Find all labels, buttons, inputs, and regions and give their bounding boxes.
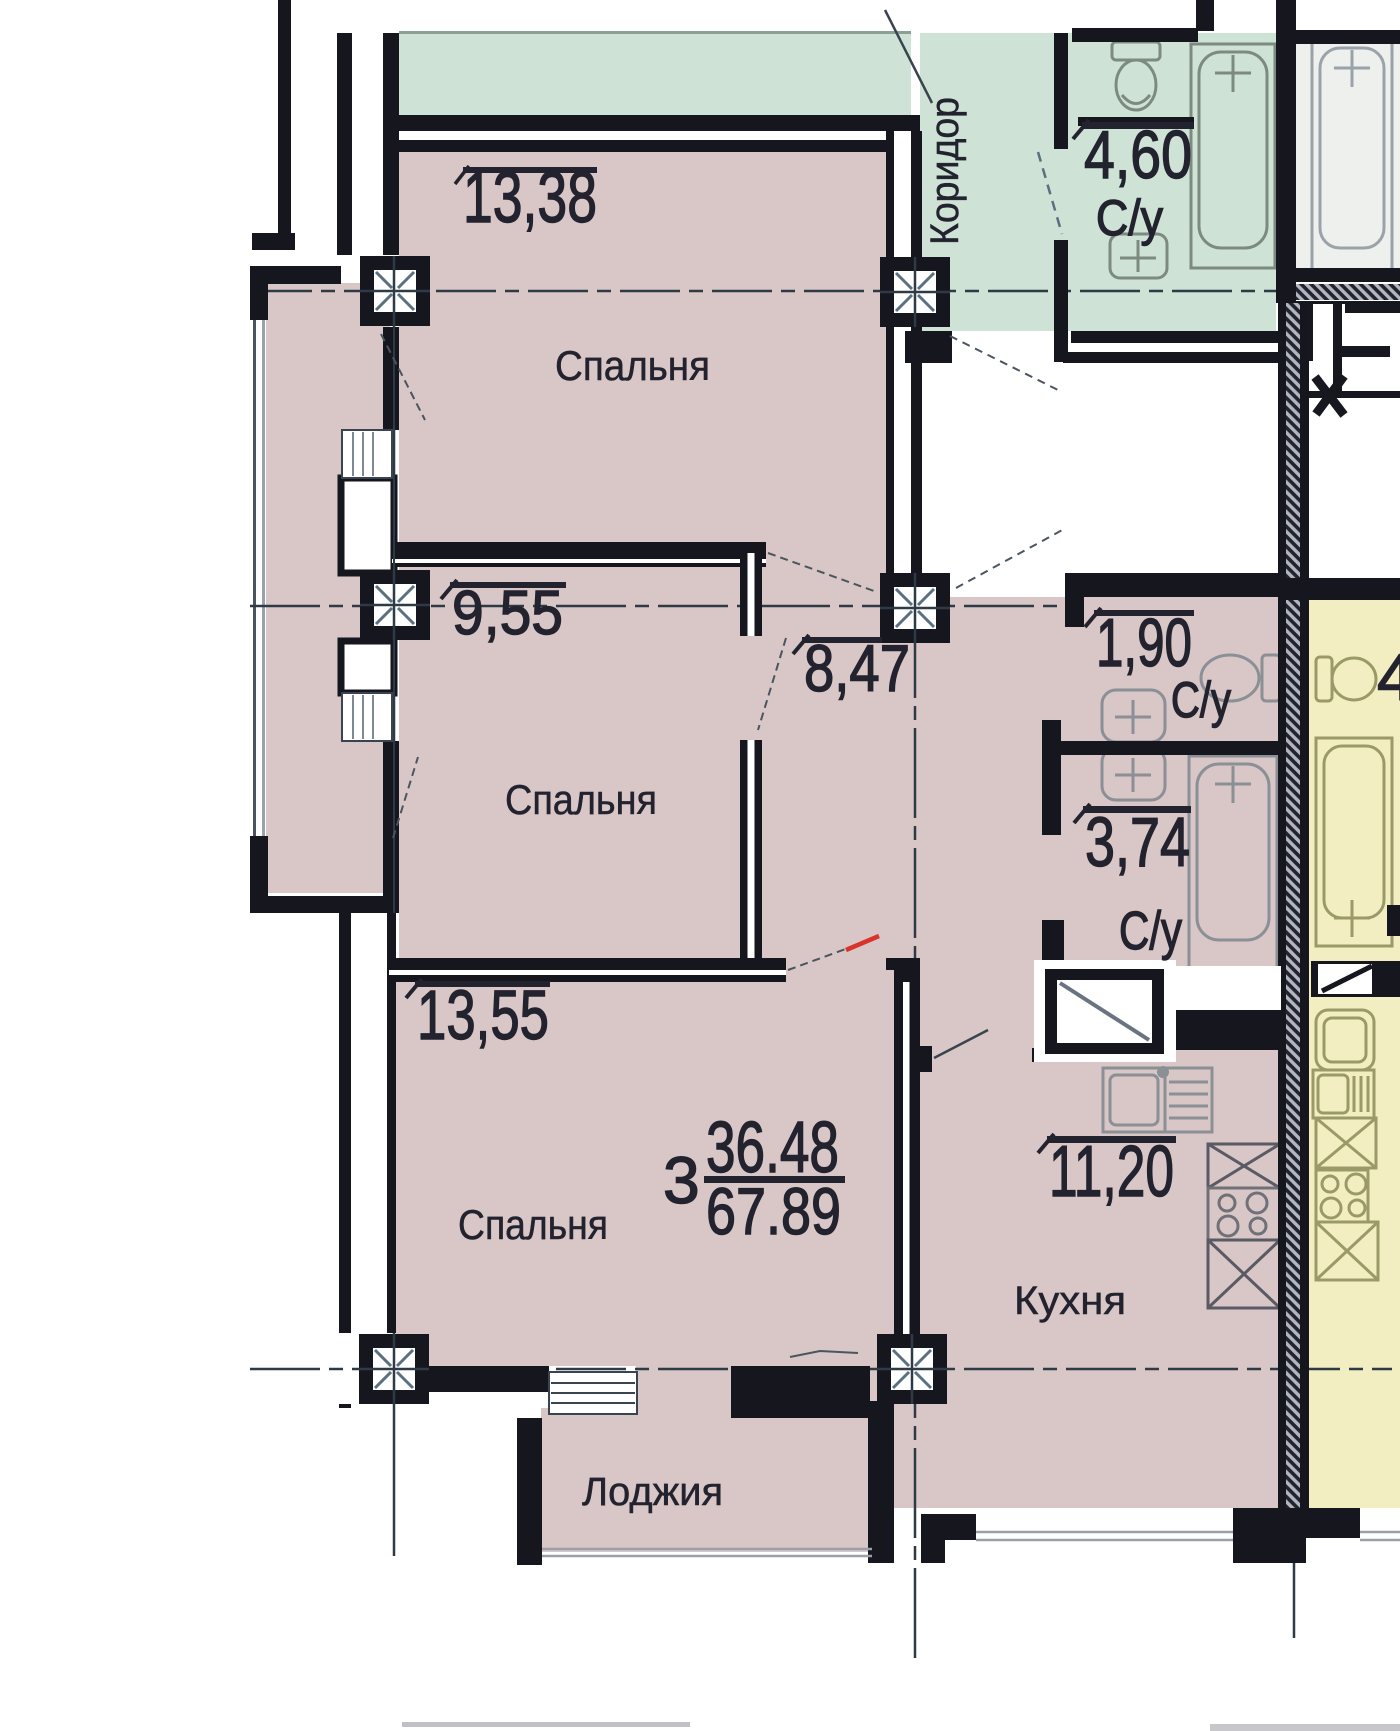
svg-text:Спальня: Спальня [505, 776, 657, 823]
svg-text:С/у: С/у [1096, 190, 1163, 246]
svg-text:4: 4 [1377, 640, 1400, 714]
svg-text:Кухня: Кухня [1014, 1279, 1126, 1323]
svg-text:Коридор: Коридор [923, 97, 967, 245]
svg-text:11,20: 11,20 [1049, 1132, 1174, 1212]
svg-text:Спальня: Спальня [555, 342, 710, 389]
svg-text:4,60: 4,60 [1084, 117, 1192, 193]
svg-text:С/у: С/у [1119, 901, 1182, 961]
svg-text:3,74: 3,74 [1085, 803, 1190, 881]
svg-text:13,55: 13,55 [417, 976, 549, 1054]
svg-text:С/у: С/у [1171, 672, 1231, 728]
svg-text:13,38: 13,38 [463, 158, 597, 238]
svg-text:67.89: 67.89 [706, 1174, 841, 1248]
svg-text:8,47: 8,47 [804, 631, 910, 705]
svg-text:3: 3 [663, 1143, 700, 1217]
svg-text:9,55: 9,55 [452, 579, 563, 648]
svg-text:Лоджия: Лоджия [582, 1470, 723, 1514]
svg-text:Спальня: Спальня [458, 1201, 608, 1248]
svg-text:1,90: 1,90 [1096, 605, 1192, 681]
